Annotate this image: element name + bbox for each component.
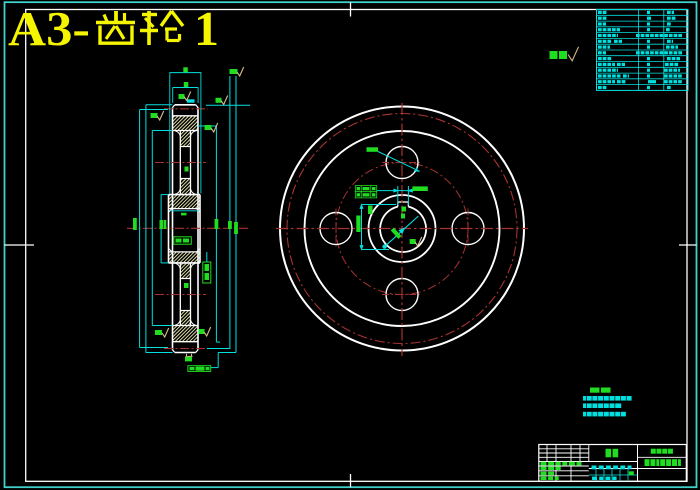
- svg-text:A3-: A3-: [8, 1, 90, 56]
- svg-text:1: 1: [194, 1, 219, 56]
